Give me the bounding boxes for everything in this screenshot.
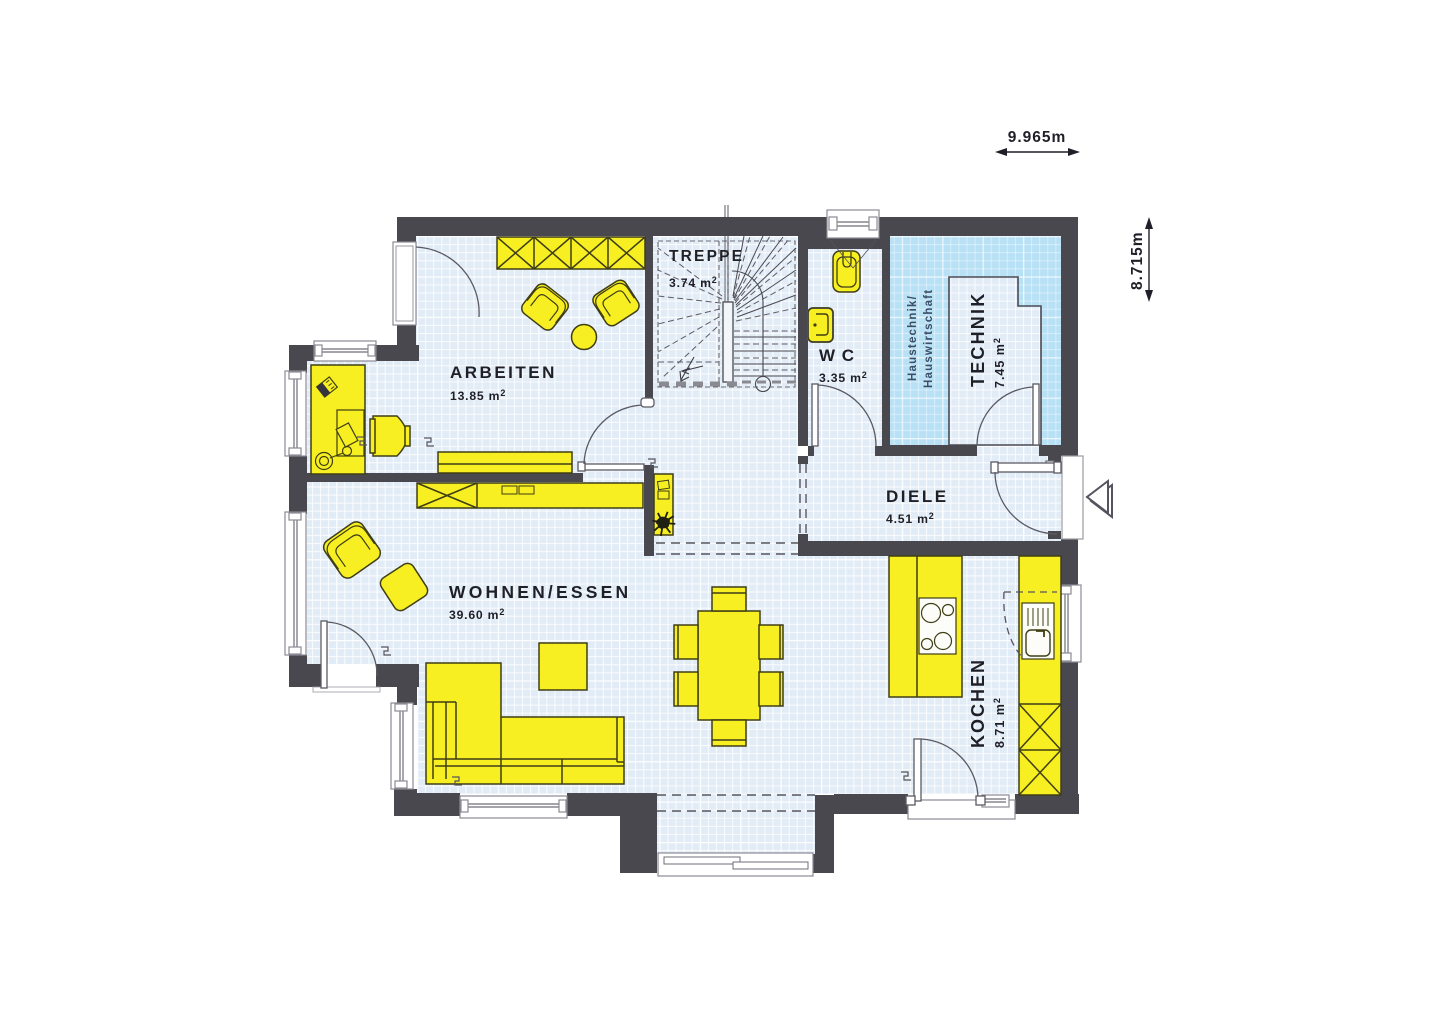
svg-text:7.45 m2: 7.45 m2 — [992, 337, 1007, 388]
svg-text:TREPPE: TREPPE — [669, 248, 744, 265]
svg-text:8.71 m2: 8.71 m2 — [992, 697, 1007, 748]
svg-text:3.35 m2: 3.35 m2 — [819, 370, 868, 385]
svg-text:Hauswirtschaft: Hauswirtschaft — [923, 289, 935, 388]
svg-text:13.85 m2: 13.85 m2 — [450, 388, 506, 403]
svg-text:ARBEITEN: ARBEITEN — [450, 363, 557, 382]
svg-text:DIELE: DIELE — [886, 487, 949, 506]
svg-text:8.715m: 8.715m — [1129, 231, 1146, 290]
svg-text:3.74 m2: 3.74 m2 — [669, 275, 718, 290]
svg-text:9.965m: 9.965m — [1008, 129, 1067, 146]
svg-text:KOCHEN: KOCHEN — [968, 658, 988, 748]
svg-text:WOHNEN/ESSEN: WOHNEN/ESSEN — [449, 582, 631, 602]
svg-text:Haustechnik/: Haustechnik/ — [907, 295, 919, 381]
svg-text:W C: W C — [819, 346, 855, 365]
svg-text:4.51 m2: 4.51 m2 — [886, 511, 935, 526]
svg-text:TECHNIK: TECHNIK — [968, 292, 988, 387]
svg-text:39.60 m2: 39.60 m2 — [449, 607, 505, 622]
